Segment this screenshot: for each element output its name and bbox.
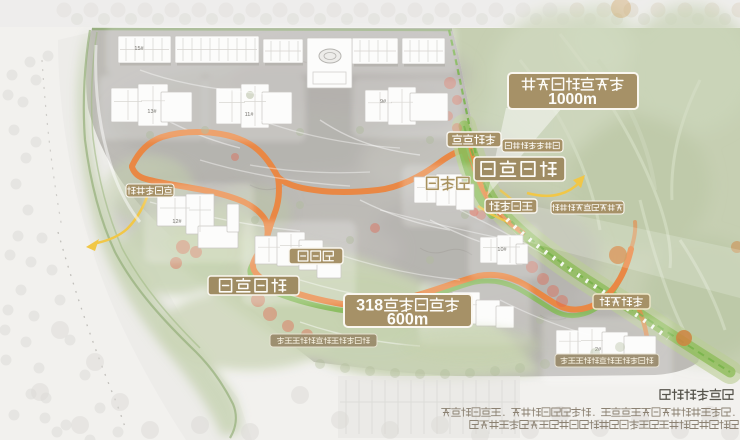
svg-text:318: 318 — [356, 296, 383, 314]
svg-text:1000m: 1000m — [548, 91, 597, 108]
svg-text:600m: 600m — [387, 310, 428, 328]
